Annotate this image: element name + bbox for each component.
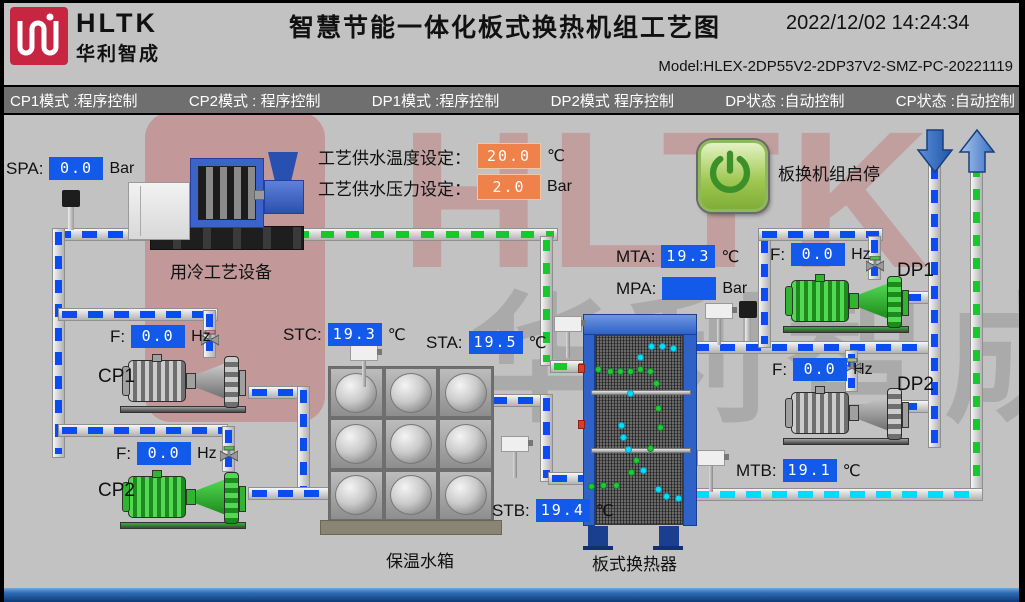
mta-temp-sensor-icon [705,303,737,345]
pipe-cp-join-drop [297,386,310,496]
spa-label: SPA: [6,159,43,179]
dp1-frequency-readout: F: 0.0 Hz [770,243,871,266]
stb-unit: ℃ [596,501,614,521]
spa-unit: Bar [109,160,134,178]
dp1-freq-label: F: [770,245,785,265]
stc-label: STC: [283,325,322,345]
supply-pressure-setpoint-label: 工艺供水压力设定： [318,175,471,200]
pipe-bottom-return [690,488,983,501]
supply-temp-setpoint-input[interactable]: 20.0 [477,143,541,169]
pump-dp1[interactable] [783,270,911,334]
pipe-dp1-feed [758,228,883,241]
cp2-freq-label: F: [116,444,131,464]
mtb-label: MTB: [736,461,777,481]
mpa-unit: Bar [722,280,747,298]
mta-label: MTA: [616,247,655,267]
frame-edge-right [1019,0,1025,602]
pipe-right-supply [928,162,941,448]
tank-base [320,520,502,535]
cp2-freq-unit: Hz [197,445,217,463]
pipe-tank-outlet [488,394,546,407]
mtb-value: 19.1 [783,459,837,482]
datetime: 2022/12/02 14:24:34 [786,12,970,35]
flow-down-arrow-icon [916,128,954,179]
pump-cp1[interactable] [120,350,248,414]
supply-pressure-setpoint-unit: Bar [547,178,572,196]
frame-edge-top [0,0,1025,3]
insulated-water-tank [328,366,494,522]
mta-unit: ℃ [721,247,739,267]
cp2-mode-status: CP2模式 : 程序控制 [189,90,321,111]
sta-unit: ℃ [529,333,547,353]
sta-label: STA: [426,333,463,353]
flow-up-arrow-icon [958,128,996,179]
pipe-cp1-suction [58,308,218,321]
cp1-label: CP1 [98,366,135,388]
mta-readout: MTA: 19.3 ℃ [616,245,739,268]
cp1-freq-label: F: [110,327,125,347]
hmi-screen: HLTK 华利智成 HLTK 华利智成 智慧节能一体化板式换热机组工艺图 202… [0,0,1025,602]
pipe-cp2-suction [58,424,228,437]
cp2-inlet-valve-icon [220,446,238,463]
spa-readout: SPA: 0.0 Bar [6,157,134,180]
pump-dp2[interactable] [783,382,911,446]
stc-unit: ℃ [388,325,406,345]
dp2-freq-unit: Hz [853,361,873,379]
model-number: Model:HLEX-2DP55V2-2DP37V2-SMZ-PC-202211… [658,58,1013,75]
pipe-cp2-discharge [248,487,334,500]
pump-cp2[interactable] [120,466,248,530]
cooling-device-label: 用冷工艺设备 [170,258,272,283]
bottom-bar [0,588,1025,602]
dp2-mode-status: DP2模式 程序控制 [551,90,674,111]
mtb-temp-sensor-icon [697,450,729,492]
supply-temp-setpoint-label: 工艺供水温度设定： [318,144,471,169]
brand-text: HLTK [76,8,158,39]
cp1-mode-status: CP1模式 :程序控制 [10,90,138,111]
hx-label: 板式换热器 [592,550,677,575]
pipe-right-return [970,162,983,494]
stc-value: 19.3 [328,323,382,346]
brand-subtext: 华利智成 [76,39,160,66]
dp2-frequency-readout: F: 0.0 Hz [772,358,873,381]
mta-value: 19.3 [661,245,715,268]
mtb-readout: MTB: 19.1 ℃ [736,459,861,482]
stb-temp-sensor-icon [501,436,533,478]
company-logo-icon [10,7,68,65]
dp2-freq-value: 0.0 [793,358,847,381]
mpa-pressure-sensor-icon [737,301,761,341]
cp1-frequency-readout: F: 0.0 Hz [110,325,211,348]
spa-value: 0.0 [49,157,103,180]
cp2-label: CP2 [98,480,135,502]
stc-readout: STC: 19.3 ℃ [283,323,406,346]
mode-status-bar: CP1模式 :程序控制 CP2模式 : 程序控制 DP1模式 :程序控制 DP2… [0,85,1025,115]
mtb-unit: ℃ [843,461,861,481]
supply-temp-setpoint-unit: ℃ [547,146,565,166]
stb-value: 19.4 [536,499,590,522]
stb-label: STB: [492,501,530,521]
cp2-frequency-readout: F: 0.0 Hz [116,442,217,465]
cp-state-status: CP状态 :自动控制 [896,90,1015,111]
cp2-freq-value: 0.0 [137,442,191,465]
stb-readout: STB: 19.4 ℃ [492,499,614,522]
spa-pressure-sensor-icon [60,190,84,230]
hx-inlet-temp-sensor-icon [554,316,586,358]
cooling-process-machine [126,150,306,256]
supply-pressure-setpoint: 工艺供水压力设定： 2.0 Bar [318,174,572,200]
dp1-freq-value: 0.0 [791,243,845,266]
supply-temp-setpoint: 工艺供水温度设定： 20.0 ℃ [318,143,565,169]
mpa-label: MPA: [616,279,656,299]
supply-pressure-setpoint-input[interactable]: 2.0 [477,174,541,200]
page-title: 智慧节能一体化板式换热机组工艺图 [250,8,760,44]
tank-label: 保温水箱 [386,547,454,572]
tank-temp-sensor-icon [350,345,382,387]
dp1-freq-unit: Hz [851,246,871,264]
dp-state-status: DP状态 :自动控制 [725,90,844,111]
dp1-label: DP1 [897,260,934,282]
pipe-tank-to-hx-drop [540,394,553,482]
sta-value: 19.5 [469,331,523,354]
mpa-value [662,277,716,300]
power-button-label: 板换机组启停 [778,160,880,185]
sta-readout: STA: 19.5 ℃ [426,331,547,354]
cp1-freq-value: 0.0 [131,325,185,348]
cp1-freq-unit: Hz [191,328,211,346]
dp1-mode-status: DP1模式 :程序控制 [372,90,500,111]
mpa-readout: MPA: Bar [616,277,747,300]
dp2-label: DP2 [897,374,934,396]
frame-edge-left [0,0,4,602]
dp2-freq-label: F: [772,360,787,380]
unit-start-stop-button[interactable] [698,140,768,212]
